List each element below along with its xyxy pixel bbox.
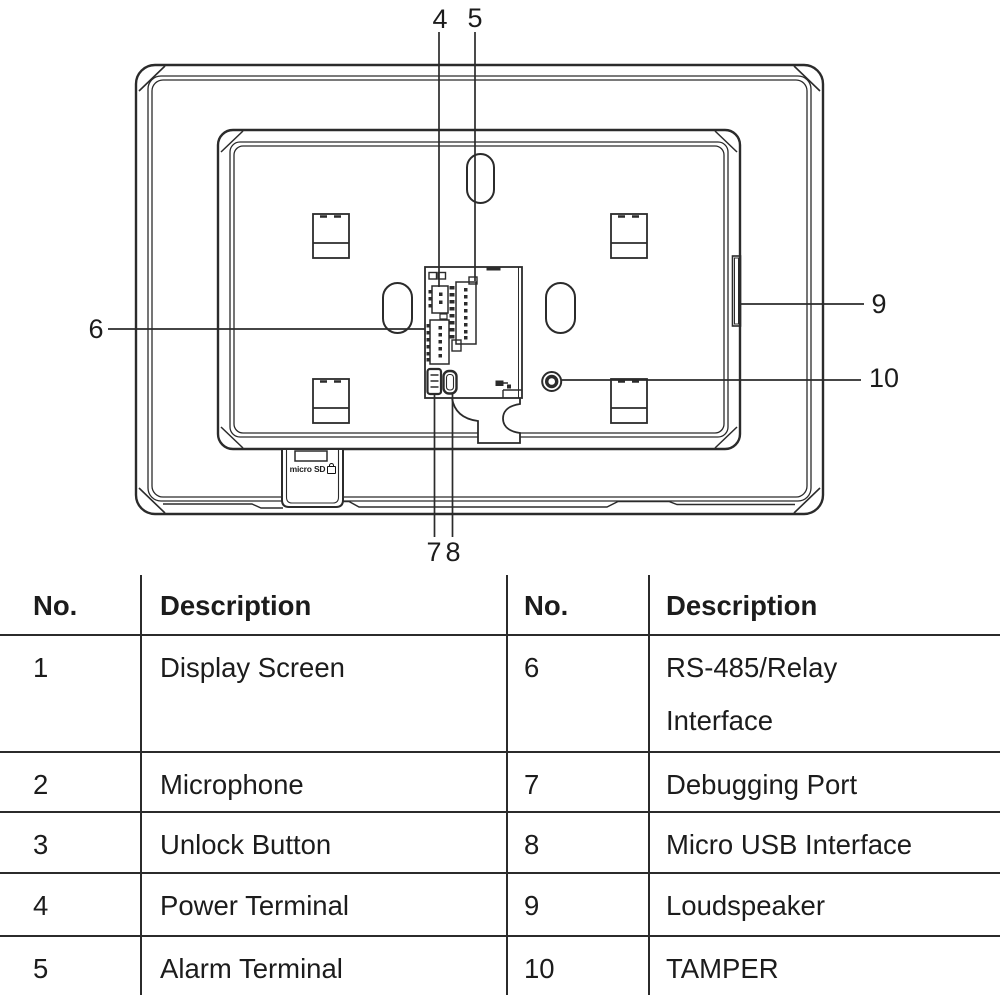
callout-label-alarm-terminal: 5 — [467, 3, 482, 33]
table-row: 2 Microphone 7 Debugging Port — [0, 752, 1000, 812]
description-cell: RS-485/Relay Interface — [649, 635, 1000, 752]
description-cell: Micro USB Interface — [649, 812, 1000, 873]
manual-page: 4 5 6 7 8 9 10 micro SD No. Description … — [0, 0, 1000, 1000]
no-cell: 7 — [507, 752, 649, 812]
lock-icon — [327, 466, 336, 474]
micro-sd-slot — [282, 449, 343, 507]
mounting-slot — [611, 379, 647, 423]
bottom-step-line — [343, 502, 795, 508]
micro-sd-text: micro SD — [290, 464, 326, 474]
no-cell: 1 — [0, 635, 141, 752]
oval-hole-right — [546, 283, 575, 333]
no-cell: 6 — [507, 635, 649, 752]
header-no-right: No. — [507, 575, 649, 635]
callout-label-micro-usb: 8 — [445, 537, 460, 567]
callout-label-tamper: 10 — [869, 363, 899, 393]
callout-label-power-terminal: 4 — [432, 4, 447, 34]
table-row: 5 Alarm Terminal 10 TAMPER — [0, 936, 1000, 995]
mounting-slot — [313, 379, 349, 423]
table-row: 3 Unlock Button 8 Micro USB Interface — [0, 812, 1000, 873]
description-cell: Debugging Port — [649, 752, 1000, 812]
no-cell: 10 — [507, 936, 649, 995]
no-cell: 2 — [0, 752, 141, 812]
no-cell: 5 — [0, 936, 141, 995]
table-header-row: No. Description No. Description — [0, 575, 1000, 635]
description-cell: Microphone — [141, 752, 507, 812]
description-cell: Alarm Terminal — [141, 936, 507, 995]
callout-label-debugging-port: 7 — [426, 537, 441, 567]
device-rear-diagram: 4 5 6 7 8 9 10 micro SD — [0, 0, 1000, 575]
callout-label-loudspeaker: 9 — [871, 289, 886, 319]
parts-table: No. Description No. Description 1 Displa… — [0, 575, 1000, 995]
callout-label-rs485-relay: 6 — [88, 314, 103, 344]
oval-hole-top — [467, 154, 494, 203]
description-cell: TAMPER — [649, 936, 1000, 995]
description-cell: Loudspeaker — [649, 873, 1000, 936]
bottom-step-line — [163, 504, 283, 508]
no-cell: 8 — [507, 812, 649, 873]
table-row: 4 Power Terminal 9 Loudspeaker — [0, 873, 1000, 936]
description-cell: Unlock Button — [141, 812, 507, 873]
micro-sd-label: micro SD — [286, 463, 340, 474]
no-cell: 3 — [0, 812, 141, 873]
table-row: 1 Display Screen 6 RS-485/Relay Interfac… — [0, 635, 1000, 752]
no-cell: 4 — [0, 873, 141, 936]
cable-channel — [452, 398, 520, 443]
no-cell: 9 — [507, 873, 649, 936]
oval-hole-left — [383, 283, 412, 333]
header-desc-left: Description — [141, 575, 507, 635]
rear-view-drawing — [0, 0, 1000, 575]
description-cell: Display Screen — [141, 635, 507, 752]
description-cell: Power Terminal — [141, 873, 507, 936]
mounting-slot — [313, 214, 349, 258]
header-desc-right: Description — [649, 575, 1000, 635]
tamper-screw — [542, 372, 561, 391]
mounting-slot — [611, 214, 647, 258]
header-no-left: No. — [0, 575, 141, 635]
